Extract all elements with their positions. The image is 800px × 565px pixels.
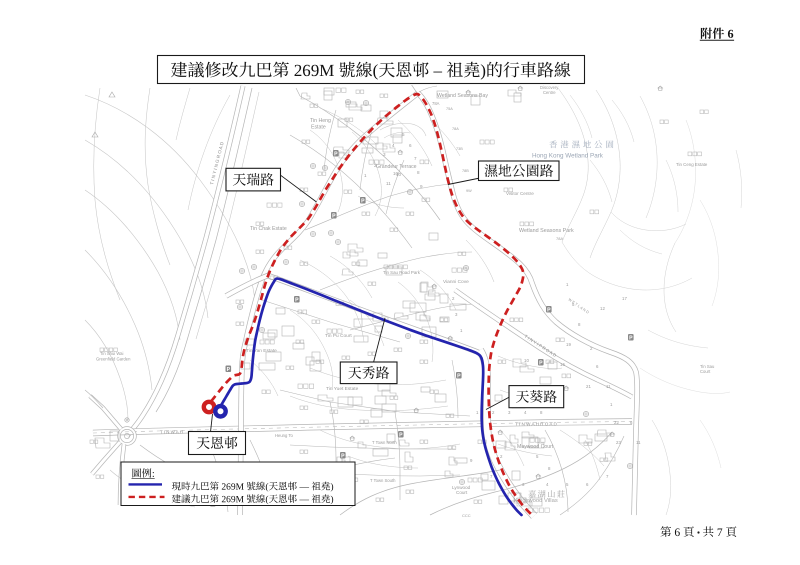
svg-text:2: 2: [452, 296, 455, 301]
svg-text:CCC: CCC: [462, 513, 471, 518]
svg-text:Wetland Seasons Bay: Wetland Seasons Bay: [437, 93, 488, 99]
svg-text:P: P: [332, 213, 336, 219]
svg-text:Tin Yan Estate: Tin Yan Estate: [246, 348, 277, 354]
svg-text:3: 3: [508, 410, 511, 415]
svg-text:3: 3: [522, 482, 525, 487]
svg-text:12: 12: [600, 306, 605, 311]
svg-text:P: P: [399, 432, 403, 438]
svg-text:Tin Sau Road Park: Tin Sau Road Park: [383, 270, 421, 275]
svg-text:11: 11: [636, 440, 641, 445]
svg-text:P: P: [295, 297, 299, 303]
svg-text:5: 5: [536, 454, 539, 459]
svg-text:17: 17: [622, 296, 627, 301]
svg-text:10: 10: [524, 358, 529, 363]
svg-text:T Town North: T Town North: [372, 440, 397, 445]
svg-text:T I N Y I P R O A D: T I N Y I P R O A D: [523, 334, 557, 358]
svg-text:Tin Yuet Estate: Tin Yuet Estate: [326, 386, 359, 392]
svg-text:Tin Heng: Tin Heng: [310, 118, 331, 124]
svg-text:73B: 73B: [456, 147, 463, 151]
svg-text:Vianni Cove: Vianni Cove: [443, 279, 469, 285]
svg-text:9W: 9W: [466, 189, 472, 193]
svg-text:10: 10: [396, 172, 402, 177]
svg-text:Heung To: Heung To: [275, 433, 294, 438]
svg-text:8: 8: [417, 170, 420, 175]
svg-text:1: 1: [460, 328, 463, 333]
svg-text:P: P: [539, 360, 543, 366]
svg-text:Court: Court: [700, 369, 711, 374]
svg-text:78B: 78B: [462, 169, 469, 173]
svg-text:78A: 78A: [432, 101, 440, 106]
svg-text:3: 3: [455, 312, 458, 317]
svg-text:1: 1: [566, 282, 569, 287]
svg-text:9: 9: [470, 458, 473, 463]
svg-text:6: 6: [586, 482, 589, 487]
svg-text:8: 8: [540, 410, 543, 415]
svg-text:P: P: [341, 453, 345, 459]
svg-text:7: 7: [606, 474, 609, 479]
svg-text:6: 6: [596, 364, 599, 369]
svg-text:9: 9: [420, 184, 423, 189]
svg-text:P: P: [227, 367, 231, 373]
svg-text:11: 11: [386, 181, 391, 186]
svg-text:22: 22: [614, 420, 619, 425]
svg-text:1: 1: [364, 173, 367, 178]
svg-text:1: 1: [610, 402, 613, 407]
svg-text:Centre: Centre: [543, 90, 556, 95]
svg-text:78A: 78A: [452, 127, 459, 131]
svg-text:8: 8: [578, 322, 581, 327]
svg-text:P: P: [334, 151, 338, 157]
svg-text:2: 2: [500, 454, 503, 459]
svg-text:3: 3: [383, 152, 386, 157]
svg-text:75A: 75A: [446, 107, 453, 111]
svg-text:T I N W A H: T I N W A H: [160, 430, 183, 435]
svg-text:4: 4: [524, 410, 527, 415]
svg-text:Maywood Court: Maywood Court: [517, 444, 554, 450]
svg-text:2: 2: [492, 410, 495, 415]
svg-text:P: P: [629, 335, 633, 341]
svg-text:4: 4: [392, 143, 395, 148]
svg-text:11: 11: [606, 384, 611, 389]
svg-text:W E T L A N D: W E T L A N D: [567, 298, 589, 315]
svg-text:5: 5: [566, 482, 569, 487]
svg-text:19: 19: [566, 342, 571, 347]
svg-text:P: P: [547, 307, 551, 313]
svg-text:1: 1: [476, 410, 479, 415]
svg-text:Tin Pu Court: Tin Pu Court: [325, 333, 352, 339]
svg-text:Wetland Seasons Park: Wetland Seasons Park: [519, 228, 574, 234]
svg-text:8: 8: [548, 466, 551, 471]
svg-text:Court: Court: [456, 490, 468, 495]
svg-text:Greenfield Garden: Greenfield Garden: [96, 357, 131, 362]
svg-text:Tin Ceng Estate: Tin Ceng Estate: [676, 162, 708, 167]
svg-text:5: 5: [402, 132, 405, 137]
svg-text:P: P: [361, 198, 365, 204]
svg-text:6: 6: [630, 420, 633, 425]
svg-text:T I N W A H R O A D: T I N W A H R O A D: [515, 422, 557, 427]
svg-text:78A: 78A: [556, 236, 563, 241]
svg-text:Hong Kong Wetland Park: Hong Kong Wetland Park: [532, 153, 604, 160]
svg-text:Tin Chak Estate: Tin Chak Estate: [250, 226, 287, 232]
svg-text:Grandeur Terrace: Grandeur Terrace: [376, 164, 417, 170]
svg-text:16: 16: [560, 362, 565, 367]
svg-text:6: 6: [409, 143, 412, 148]
svg-text:7: 7: [490, 474, 493, 479]
svg-text:P: P: [457, 373, 461, 379]
svg-text:7: 7: [414, 156, 417, 161]
svg-text:23: 23: [616, 440, 621, 445]
svg-text:Estate: Estate: [311, 125, 326, 131]
svg-text:4: 4: [546, 482, 549, 487]
svg-text:21: 21: [586, 384, 591, 389]
svg-text:T Town South: T Town South: [370, 478, 396, 483]
